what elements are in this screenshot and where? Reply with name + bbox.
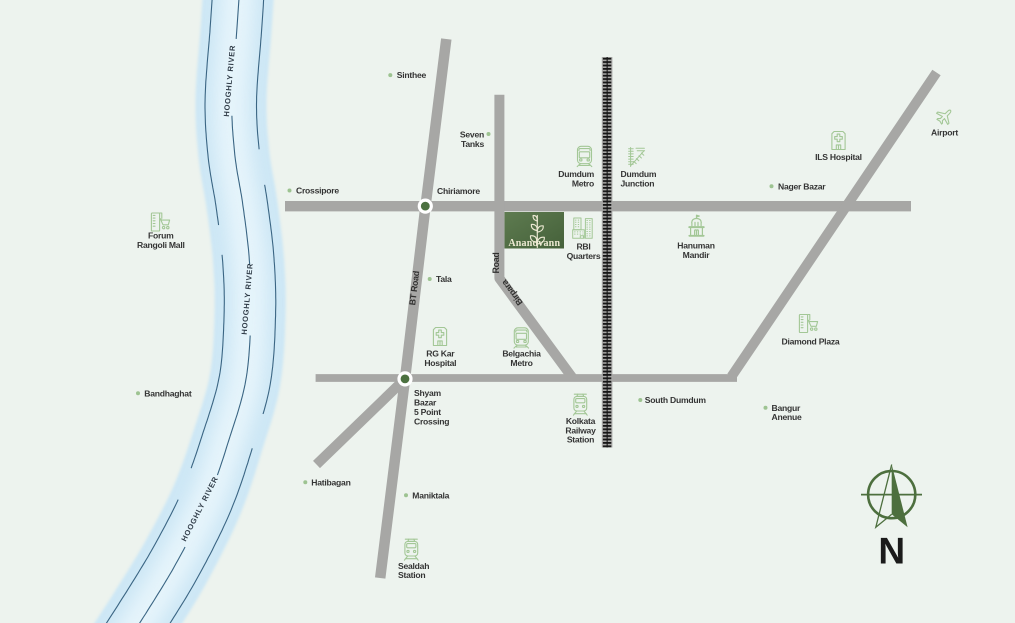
svg-text:ILS Hospital: ILS Hospital [815, 152, 862, 162]
svg-text:N: N [878, 531, 905, 572]
svg-text:SealdahStation: SealdahStation [398, 561, 429, 580]
svg-text:Anandvann: Anandvann [508, 238, 560, 249]
svg-text:Tala: Tala [436, 274, 452, 284]
svg-text:Chiriamore: Chiriamore [437, 186, 480, 196]
svg-text:RG KarHospital: RG KarHospital [424, 349, 456, 369]
svg-text:KolkataRailwayStation: KolkataRailwayStation [565, 416, 596, 445]
svg-text:Nager Bazar: Nager Bazar [778, 181, 826, 191]
svg-text:Airport: Airport [931, 128, 958, 138]
svg-text:BangurAnenue: BangurAnenue [772, 403, 802, 422]
svg-text:DumdumJunction: DumdumJunction [621, 169, 657, 189]
svg-text:Road: Road [491, 253, 501, 274]
svg-text:SevenTanks: SevenTanks [460, 129, 485, 149]
svg-text:Crossipore: Crossipore [296, 186, 339, 196]
svg-text:HanumanMandir: HanumanMandir [677, 241, 714, 261]
svg-text:Bandhaghat: Bandhaghat [144, 388, 192, 398]
svg-text:Hatibagan: Hatibagan [311, 477, 350, 487]
svg-text:Diamond Plaza: Diamond Plaza [782, 337, 840, 347]
svg-text:South Dumdum: South Dumdum [645, 395, 707, 405]
svg-text:Sinthee: Sinthee [397, 70, 427, 80]
svg-text:Maniktala: Maniktala [412, 491, 449, 501]
